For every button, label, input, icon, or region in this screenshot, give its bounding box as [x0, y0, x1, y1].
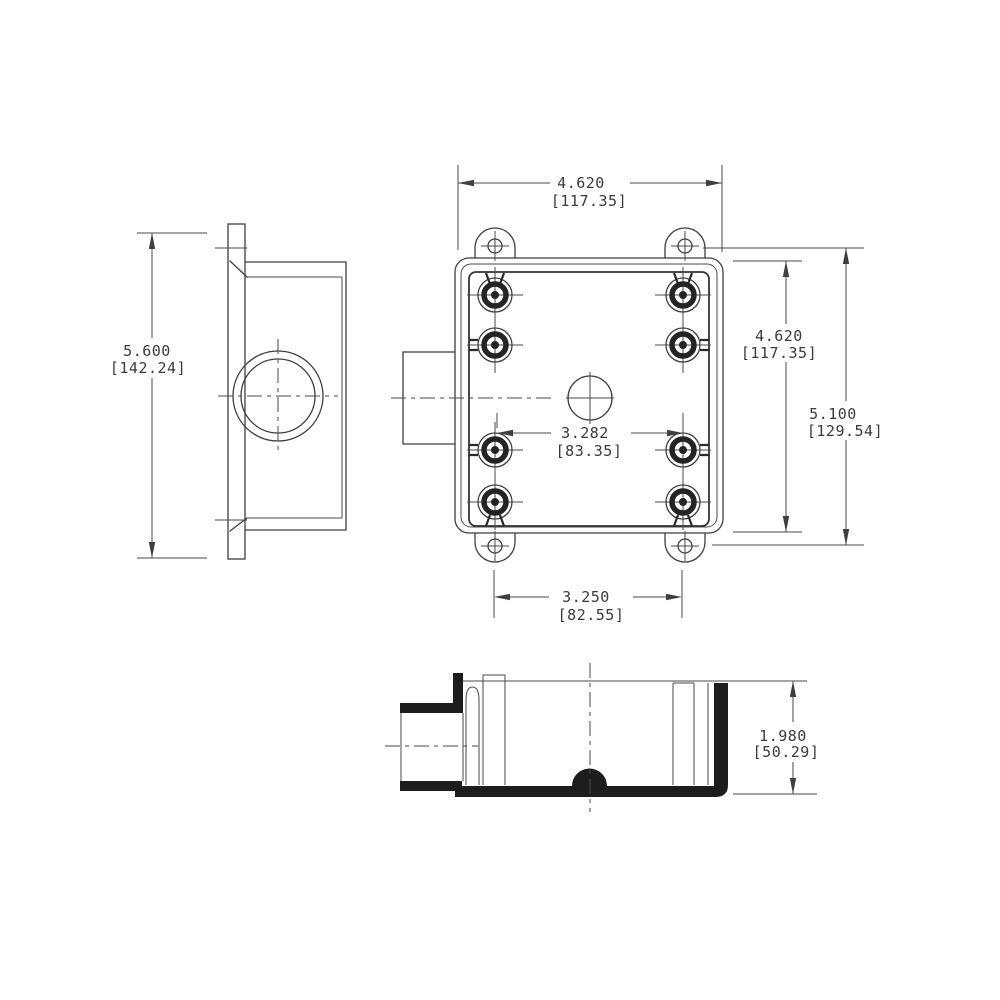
dim-device-screw-spacing-metric: [83.35] [556, 442, 623, 460]
screw-boss [655, 422, 711, 478]
dim-lug-spacing-value: 3.250 [562, 588, 610, 606]
screw-boss [655, 474, 711, 530]
hub-top-wall-section [400, 673, 463, 713]
center-knockout [566, 372, 614, 424]
dim-side-height-metric: [142.24] [110, 359, 186, 377]
dim-front-height-value: 4.620 [755, 327, 803, 345]
screw-boss [467, 474, 523, 530]
dim-overall-height-value: 5.100 [809, 405, 857, 423]
mounting-lug-top-right [665, 228, 705, 261]
side-view: 5.600 [142.24] [110, 224, 346, 559]
dim-lug-spacing: 3.250 [82.55] [494, 570, 682, 624]
lug-hole-section [466, 687, 479, 785]
conduit-hub-circle [218, 339, 338, 454]
mounting-lug-bottom-right [665, 531, 705, 562]
dim-front-height-metric: [117.35] [741, 344, 817, 362]
mounting-lug-bottom-left [475, 531, 515, 562]
dim-box-depth-metric: [50.29] [753, 743, 820, 761]
bottom-section-view: 1.980 [50.29] [385, 663, 819, 812]
dim-overall-height-metric: [129.54] [807, 422, 883, 440]
drawing-canvas: 5.600 [142.24] [0, 0, 1000, 1000]
screw-boss [467, 267, 523, 323]
screw-boss [655, 267, 711, 323]
side-flange [228, 224, 245, 559]
technical-drawing: 5.600 [142.24] [0, 0, 1000, 1000]
dim-front-width-metric: [117.35] [551, 192, 627, 210]
dim-box-depth: 1.980 [50.29] [733, 681, 819, 794]
front-view: 4.620 [117.35] 4.620 [117.35] 5.100 [129… [391, 165, 883, 624]
box-wall-section [400, 683, 728, 797]
screw-boss [655, 317, 711, 373]
dim-front-width-value: 4.620 [557, 174, 605, 192]
dim-lug-spacing-metric: [82.55] [558, 606, 625, 624]
mounting-lug-top-left [475, 228, 515, 261]
dim-front-height: 4.620 [117.35] [733, 261, 817, 532]
screw-boss [467, 422, 523, 478]
dim-side-height-value: 5.600 [123, 342, 171, 360]
dim-overall-height: 5.100 [129.54] [703, 248, 883, 545]
dim-side-height: 5.600 [142.24] [110, 233, 207, 558]
dim-device-screw-spacing-value: 3.282 [561, 424, 609, 442]
screw-boss [467, 317, 523, 373]
